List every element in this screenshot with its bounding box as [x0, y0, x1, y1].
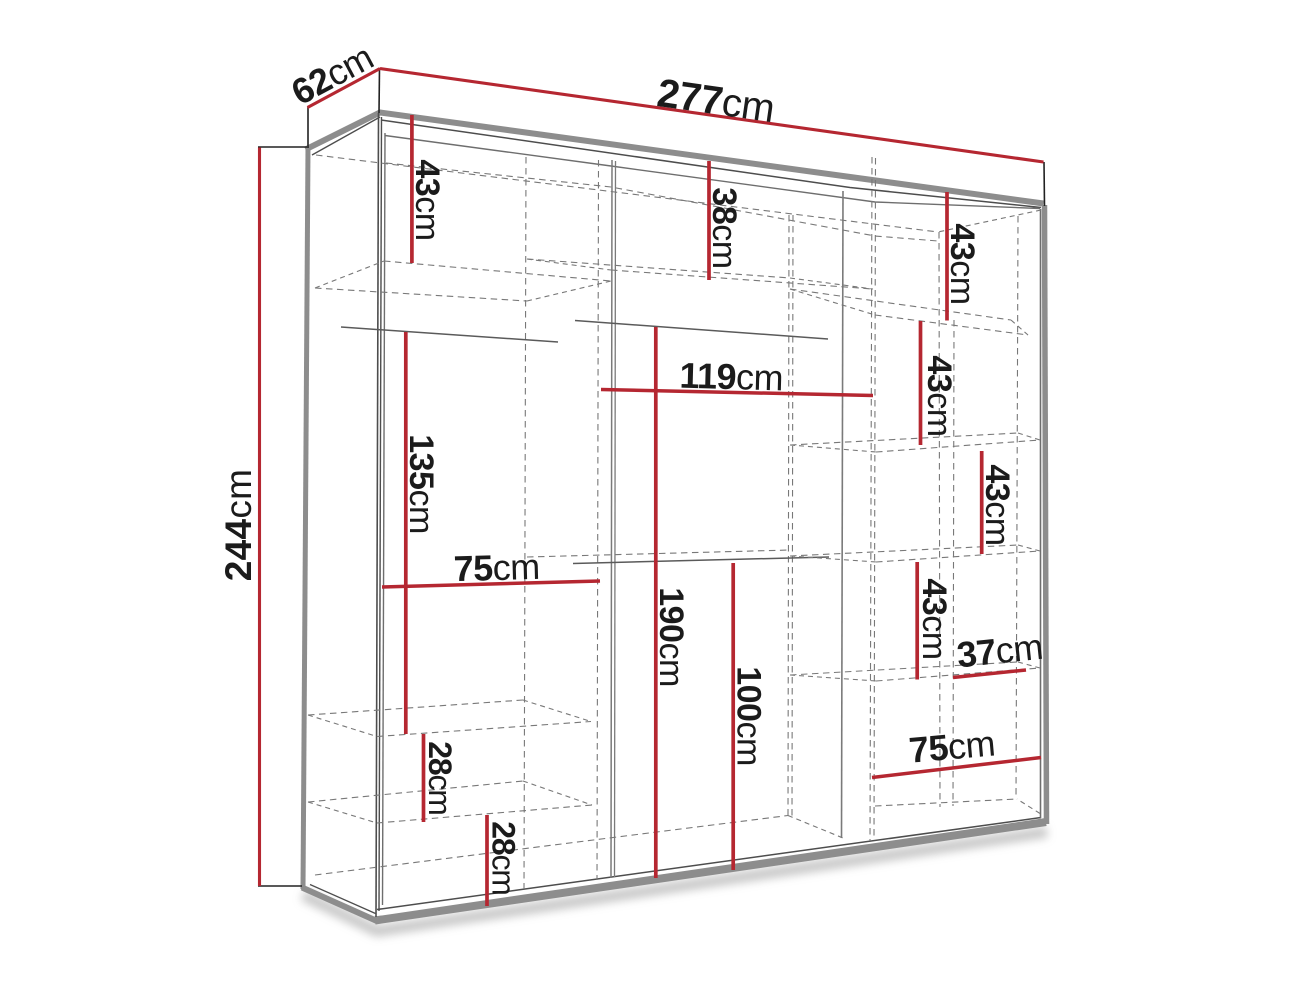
svg-text:43cm: 43cm [920, 355, 958, 436]
svg-text:38cm: 38cm [705, 187, 743, 268]
svg-text:28cm: 28cm [422, 741, 458, 814]
svg-text:100cm: 100cm [730, 666, 768, 766]
svg-text:43cm: 43cm [408, 159, 446, 240]
svg-text:75cm: 75cm [453, 546, 540, 589]
svg-text:43cm: 43cm [943, 223, 981, 304]
svg-text:190cm: 190cm [652, 587, 690, 687]
svg-text:244cm: 244cm [218, 469, 259, 582]
svg-text:119cm: 119cm [679, 355, 784, 399]
svg-text:135cm: 135cm [402, 434, 440, 534]
svg-text:43cm: 43cm [978, 464, 1016, 545]
svg-text:75cm: 75cm [907, 722, 996, 770]
svg-text:28cm: 28cm [486, 821, 522, 894]
svg-text:43cm: 43cm [915, 578, 953, 659]
